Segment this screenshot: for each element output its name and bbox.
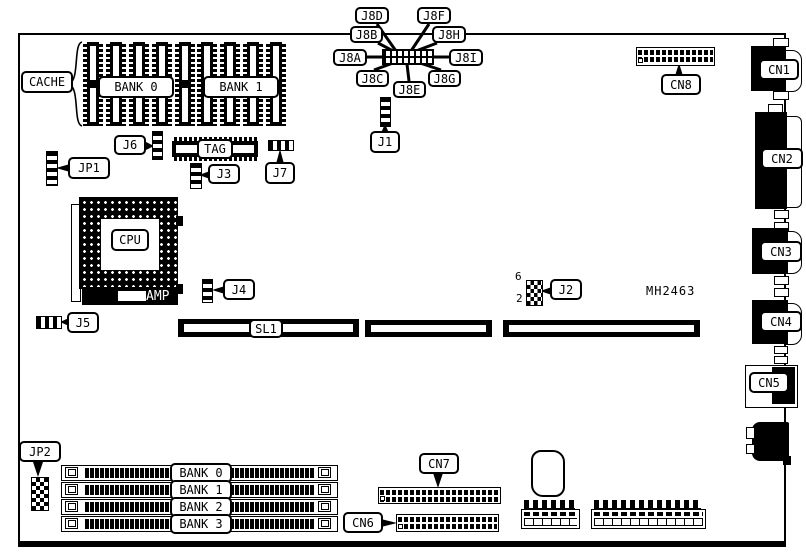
j6-label: J6 [114, 135, 146, 155]
j8g-label: J8G [428, 70, 461, 87]
expansion-slot [365, 320, 492, 337]
cpu-label: CPU [111, 229, 149, 251]
j8b-label: J8B [350, 26, 383, 43]
cn3-label: CN3 [760, 241, 802, 262]
edge-tab [774, 346, 788, 354]
simm-latch [65, 484, 78, 495]
j1-label: J1 [370, 131, 400, 153]
cn4-label: CN4 [760, 311, 802, 332]
simm-latch [318, 484, 331, 495]
j1-jumper [380, 97, 391, 127]
tag-label: TAG [197, 139, 233, 159]
j7-label: J7 [265, 162, 295, 184]
expansion-slot [503, 320, 700, 337]
cn7-header [378, 487, 501, 504]
edge-tab [774, 356, 788, 364]
j4-label: J4 [223, 279, 255, 300]
j7-jumper [268, 140, 294, 151]
j5-jumper [36, 316, 62, 329]
keyboard-din-step [783, 456, 791, 465]
edge-tab [773, 38, 789, 47]
j8h-label: J8H [432, 26, 466, 43]
j8-header-block [382, 49, 434, 65]
edge-tab [774, 276, 789, 285]
j8f-label: J8F [417, 7, 451, 24]
jp1-label: JP1 [68, 157, 110, 179]
cache-label: CACHE [21, 71, 73, 93]
jp1-jumper [46, 151, 58, 186]
cn7-label: CN7 [419, 453, 459, 474]
cn2-label: CN2 [761, 148, 803, 169]
jp2-label: JP2 [19, 441, 61, 462]
sl1-label: SL1 [249, 319, 283, 338]
cn6-header [396, 514, 499, 532]
cache-bank1-label: BANK 1 [203, 76, 279, 98]
cache-bank0-label: BANK 0 [98, 76, 174, 98]
edge-tab [746, 427, 755, 439]
edge-tab [774, 210, 789, 219]
edge-tab [773, 91, 789, 100]
memory-bank3-label: BANK 3 [170, 514, 232, 534]
j3-jumper [190, 163, 202, 189]
simm-latch [318, 518, 331, 529]
cache-chip [175, 42, 195, 126]
j3-label: J3 [208, 164, 240, 184]
edge-tab [774, 288, 789, 297]
j8d-label: J8D [355, 7, 389, 24]
j6-jumper [152, 131, 163, 160]
j2-label: J2 [550, 279, 582, 300]
cn8-label: CN8 [661, 74, 701, 95]
power-connector [591, 509, 706, 529]
j2-pin6-label: 6 [515, 271, 522, 282]
jp2-block [31, 477, 49, 511]
j5-label: J5 [67, 312, 99, 333]
j8i-label: J8I [449, 49, 483, 66]
cn1-label: CN1 [759, 59, 799, 80]
j4-jumper [202, 279, 213, 303]
cpu-socket-nub [176, 216, 183, 226]
simm-latch [65, 501, 78, 512]
simm-latch [318, 501, 331, 512]
cpu-socket-brand: AMP [146, 289, 169, 304]
edge-tab [746, 444, 755, 454]
j8c-label: J8C [356, 70, 389, 87]
simm-latch [65, 518, 78, 529]
power-connector [521, 509, 580, 529]
simm-latch [318, 467, 331, 478]
cpu-socket-window [118, 291, 146, 301]
j2-block [526, 280, 543, 306]
j8e-label: J8E [393, 81, 426, 98]
board-part-number: MH2463 [646, 284, 695, 298]
j8a-label: J8A [333, 49, 367, 66]
cn8-header [636, 47, 715, 66]
motherboard-diagram: CACHE BANK 0 BANK 1 J6 TAG J7 JP1 J3 CPU… [0, 0, 806, 552]
j2-pin2-label: 2 [516, 293, 523, 304]
battery-outline [531, 450, 565, 497]
simm-latch [65, 467, 78, 478]
cn6-label: CN6 [343, 512, 383, 533]
cn5-label: CN5 [749, 372, 789, 393]
